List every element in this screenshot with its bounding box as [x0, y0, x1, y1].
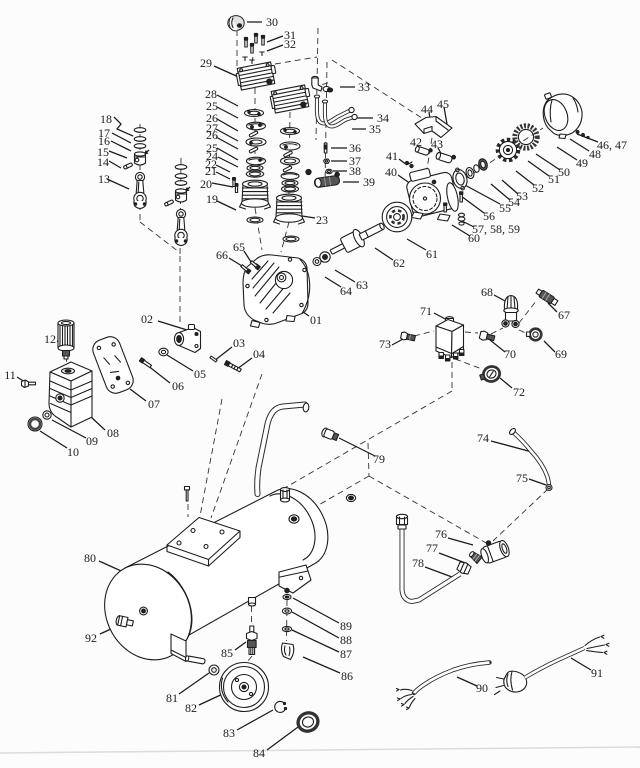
svg-text:83: 83: [223, 726, 235, 740]
svg-text:13: 13: [98, 172, 110, 186]
svg-text:89: 89: [340, 619, 352, 633]
svg-text:40: 40: [385, 165, 397, 179]
svg-text:45: 45: [437, 97, 449, 111]
svg-text:55: 55: [499, 201, 511, 215]
svg-text:85: 85: [221, 646, 233, 660]
svg-text:77: 77: [426, 541, 438, 555]
svg-text:84: 84: [253, 746, 265, 760]
svg-text:11: 11: [4, 368, 16, 382]
svg-text:49: 49: [576, 156, 588, 170]
svg-text:39: 39: [363, 175, 375, 189]
svg-text:87: 87: [340, 647, 352, 661]
svg-text:38: 38: [349, 164, 361, 178]
svg-text:73: 73: [379, 337, 391, 351]
svg-text:52: 52: [532, 181, 544, 195]
svg-text:76: 76: [435, 527, 447, 541]
svg-text:66: 66: [216, 248, 228, 262]
svg-text:82: 82: [185, 701, 197, 715]
svg-text:41: 41: [386, 149, 398, 163]
svg-text:71: 71: [420, 304, 432, 318]
svg-text:04: 04: [253, 347, 265, 361]
svg-text:68: 68: [481, 285, 493, 299]
svg-text:23: 23: [316, 213, 328, 227]
svg-text:29: 29: [200, 56, 212, 70]
svg-text:72: 72: [513, 385, 525, 399]
svg-text:69: 69: [555, 347, 567, 361]
svg-text:08: 08: [107, 426, 119, 440]
svg-text:64: 64: [340, 284, 352, 298]
svg-text:18: 18: [100, 112, 112, 126]
svg-text:21: 21: [205, 164, 217, 178]
svg-text:74: 74: [477, 431, 489, 445]
svg-text:61: 61: [426, 247, 438, 261]
svg-text:86: 86: [341, 669, 353, 683]
svg-text:01: 01: [310, 313, 322, 327]
svg-text:91: 91: [591, 666, 603, 680]
svg-text:48: 48: [589, 147, 601, 161]
svg-text:88: 88: [340, 633, 352, 647]
svg-text:06: 06: [172, 379, 184, 393]
svg-text:44: 44: [421, 102, 433, 116]
svg-text:30: 30: [266, 15, 278, 29]
svg-text:35: 35: [369, 122, 381, 136]
svg-text:05: 05: [194, 367, 206, 381]
svg-text:56: 56: [483, 209, 495, 223]
svg-text:03: 03: [233, 336, 245, 350]
svg-text:09: 09: [86, 434, 98, 448]
svg-text:90: 90: [476, 681, 488, 695]
svg-text:14: 14: [97, 155, 109, 169]
svg-text:65: 65: [233, 240, 245, 254]
svg-text:12: 12: [44, 332, 56, 346]
svg-text:62: 62: [393, 256, 405, 270]
svg-text:43: 43: [431, 137, 443, 151]
svg-text:46, 47: 46, 47: [597, 138, 627, 152]
svg-text:36: 36: [349, 141, 361, 155]
svg-text:02: 02: [141, 312, 153, 326]
svg-text:78: 78: [412, 556, 424, 570]
svg-text:10: 10: [67, 445, 79, 459]
svg-text:07: 07: [148, 397, 160, 411]
svg-text:33: 33: [358, 80, 370, 94]
svg-text:75: 75: [516, 471, 528, 485]
svg-text:60: 60: [468, 231, 480, 245]
svg-text:79: 79: [373, 452, 385, 466]
svg-text:63: 63: [356, 278, 368, 292]
svg-text:19: 19: [206, 192, 218, 206]
svg-text:92: 92: [85, 631, 97, 645]
svg-text:20: 20: [200, 177, 212, 191]
svg-text:67: 67: [558, 308, 570, 322]
svg-text:70: 70: [504, 347, 516, 361]
svg-text:81: 81: [166, 691, 178, 705]
svg-text:80: 80: [84, 551, 96, 565]
svg-text:51: 51: [548, 172, 560, 186]
svg-text:26: 26: [206, 128, 218, 142]
svg-text:32: 32: [284, 37, 296, 51]
